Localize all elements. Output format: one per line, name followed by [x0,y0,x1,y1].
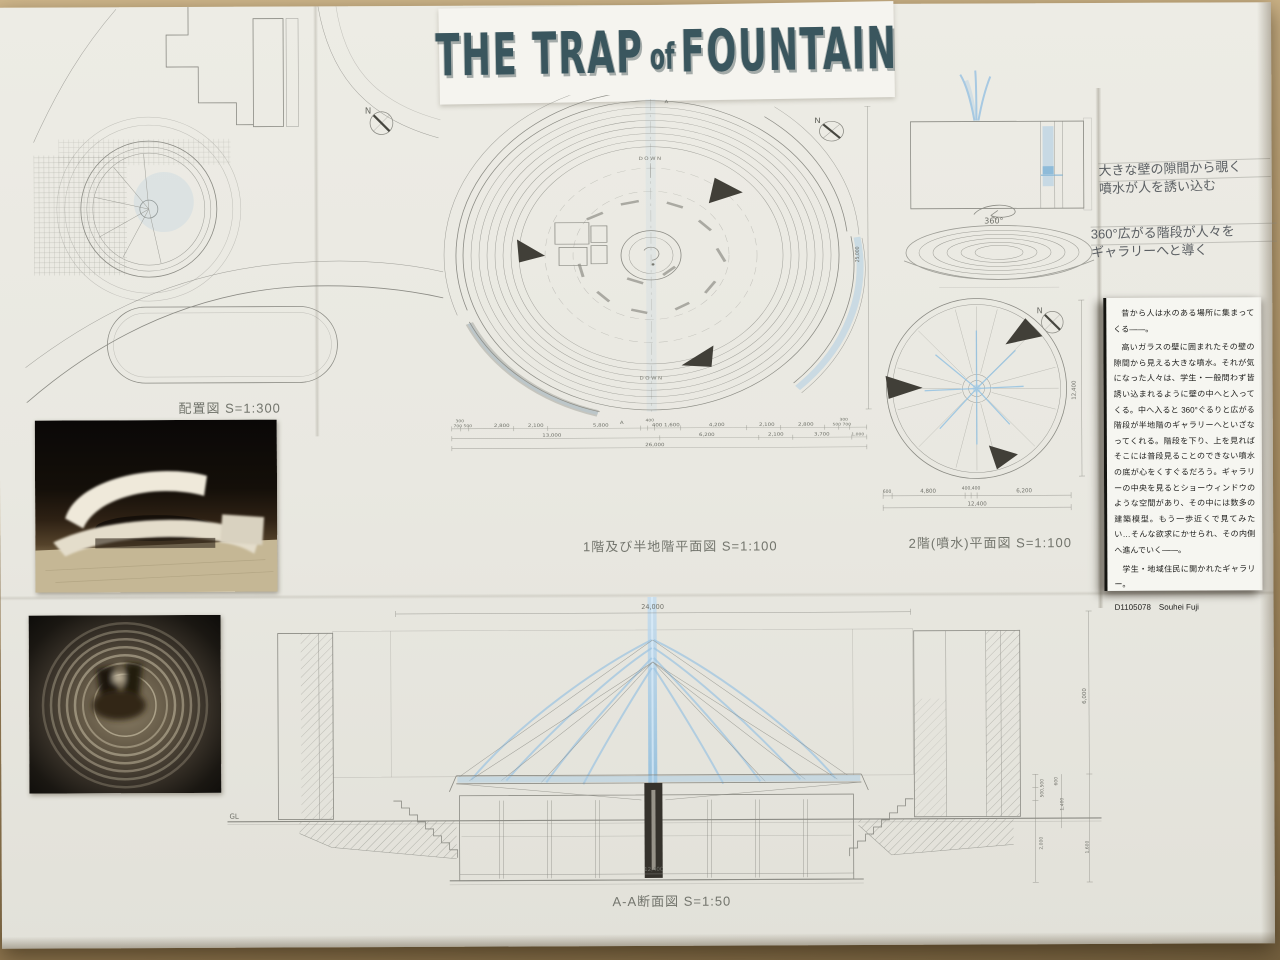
gl-label: GL [229,813,238,821]
plan2-dim-texts: 600 4,800 400,400 6,200 12,400 12,400 [882,380,1078,508]
fountain-column [648,597,658,787]
section-mark: A [620,420,624,425]
title-part1: THE TRAP [435,20,644,90]
fountain-glimpse [1040,126,1062,186]
dish-rings [904,225,1094,288]
svg-text:12,400: 12,400 [644,867,664,873]
right-wall [914,630,1021,816]
section-mark: A [664,99,668,104]
poster-photo: { "title": { "part1": "THE TRAP", "part2… [0,0,1280,960]
svg-text:300: 300 [839,417,848,422]
plan2-water-jets [924,330,1023,444]
plan2-wedges [885,318,1043,470]
fountain-model-photo [29,615,222,794]
site-plan-label: 配置図 S=1:300 [120,397,340,417]
svg-text:3,700: 3,700 [814,432,830,437]
svg-text:6,000: 6,000 [1082,688,1088,704]
svg-text:2,000: 2,000 [1039,837,1045,850]
svg-text:5,800: 5,800 [593,423,609,428]
site-compass [365,107,393,135]
svg-text:2,100: 2,100 [528,423,544,428]
down-label-bottom: DOWN [640,376,664,381]
plan2-dim-lines [882,300,1085,511]
svg-text:25,000: 25,000 [855,247,862,263]
svg-text:600: 600 [1053,777,1059,786]
title-part2: of [649,35,674,77]
svg-text:4,800: 4,800 [920,489,936,495]
second-floor-plan-label: 2階(噴水)平面図 S=1:100 [890,532,1090,552]
rotation-note: 360° [984,216,1003,225]
description-para1: 昔から人は水のある場所に集まってくる――。 [1113,305,1254,337]
svg-text:600: 600 [883,489,892,495]
title-banner: THE TRAPofFOUNTAIN [438,1,895,105]
stair-dish-sketch: 360° [897,193,1102,299]
fountain-spray [960,70,990,120]
svg-text:12,400: 12,400 [1072,380,1078,400]
svg-text:1,000: 1,000 [851,432,864,437]
caption-wall-gap: 大きな壁の隙間から覗く 噴水が人を誘い込む [1098,157,1271,198]
section-label: A-A断面図 S=1:50 [562,890,782,910]
svg-text:6,200: 6,200 [1016,488,1032,494]
first-floor-plan-drawing: DOWN DOWN A A 300 40 [441,94,875,536]
site-plan-drawing [23,6,445,403]
site-roads [25,261,444,403]
section-dim-texts: 24,000 12,400 6,000 500,500 600 1,400 2,… [641,601,1091,873]
svg-text:2,800: 2,800 [798,422,814,427]
svg-text:12,400: 12,400 [967,501,987,507]
svg-text:2,100: 2,100 [759,422,775,427]
svg-text:300: 300 [455,419,464,424]
svg-text:6,200: 6,200 [699,432,715,437]
description-para2: 高いガラスの壁に囲まれたその壁の隙間から見える大きな噴水。それが気になった人々は… [1113,339,1255,558]
board-edge-shadow [2,931,1275,949]
svg-text:1,600: 1,600 [1085,840,1091,853]
dimension-texts: 300 400 300 700 500 2,800 2,100 5,800 40… [453,246,865,448]
svg-text:400,400: 400,400 [962,485,981,491]
glass-wall-blue [797,237,861,388]
caption-stairs-360: 360°広がる階段が人々を ギャラリーへと導く [1091,222,1278,262]
poster-title: THE TRAPofFOUNTAIN [435,16,898,90]
svg-text:500,500: 500,500 [1039,779,1045,798]
svg-text:700 500: 700 500 [453,424,472,429]
svg-text:26,000: 26,000 [645,442,664,447]
svg-text:24,000: 24,000 [641,603,664,611]
back-walls [333,629,914,778]
main-plan-compass [814,116,843,141]
presentation-board: THE TRAPofFOUNTAIN [0,2,1275,949]
svg-text:2,100: 2,100 [768,432,784,437]
title-part3: FOUNTAIN [680,16,898,86]
model-photo [35,420,278,593]
svg-text:400: 400 [645,418,654,423]
section-drawing: GL [221,588,1110,914]
down-label-top: DOWN [639,156,663,161]
rotation-arrow: 360° [974,205,1015,225]
svg-text:2,800: 2,800 [494,423,510,428]
site-ground-texture [34,139,232,276]
plan2-compass [1037,305,1064,333]
description-para3: 学生・地域住民に開かれたギャラリー。 [1114,561,1255,593]
first-floor-plan-label: 1階及び半地階平面図 S=1:100 [540,535,820,555]
description-card: 昔から人は水のある場所に集まってくる――。 高いガラスの壁に囲まれたその壁の隙間… [1103,297,1262,591]
svg-text:13,000: 13,000 [542,433,561,438]
second-floor-plan-drawing: 600 4,800 400,400 6,200 12,400 12,400 [874,291,1090,514]
student-credit: D1105078 Souhei Fuji [1115,599,1256,615]
svg-text:500 700: 500 700 [832,422,851,427]
svg-text:4,200: 4,200 [709,422,725,427]
svg-text:400 1,600: 400 1,600 [652,423,680,429]
left-wall [278,633,334,819]
room-cluster [555,223,607,266]
svg-text:1,400: 1,400 [1059,798,1065,811]
